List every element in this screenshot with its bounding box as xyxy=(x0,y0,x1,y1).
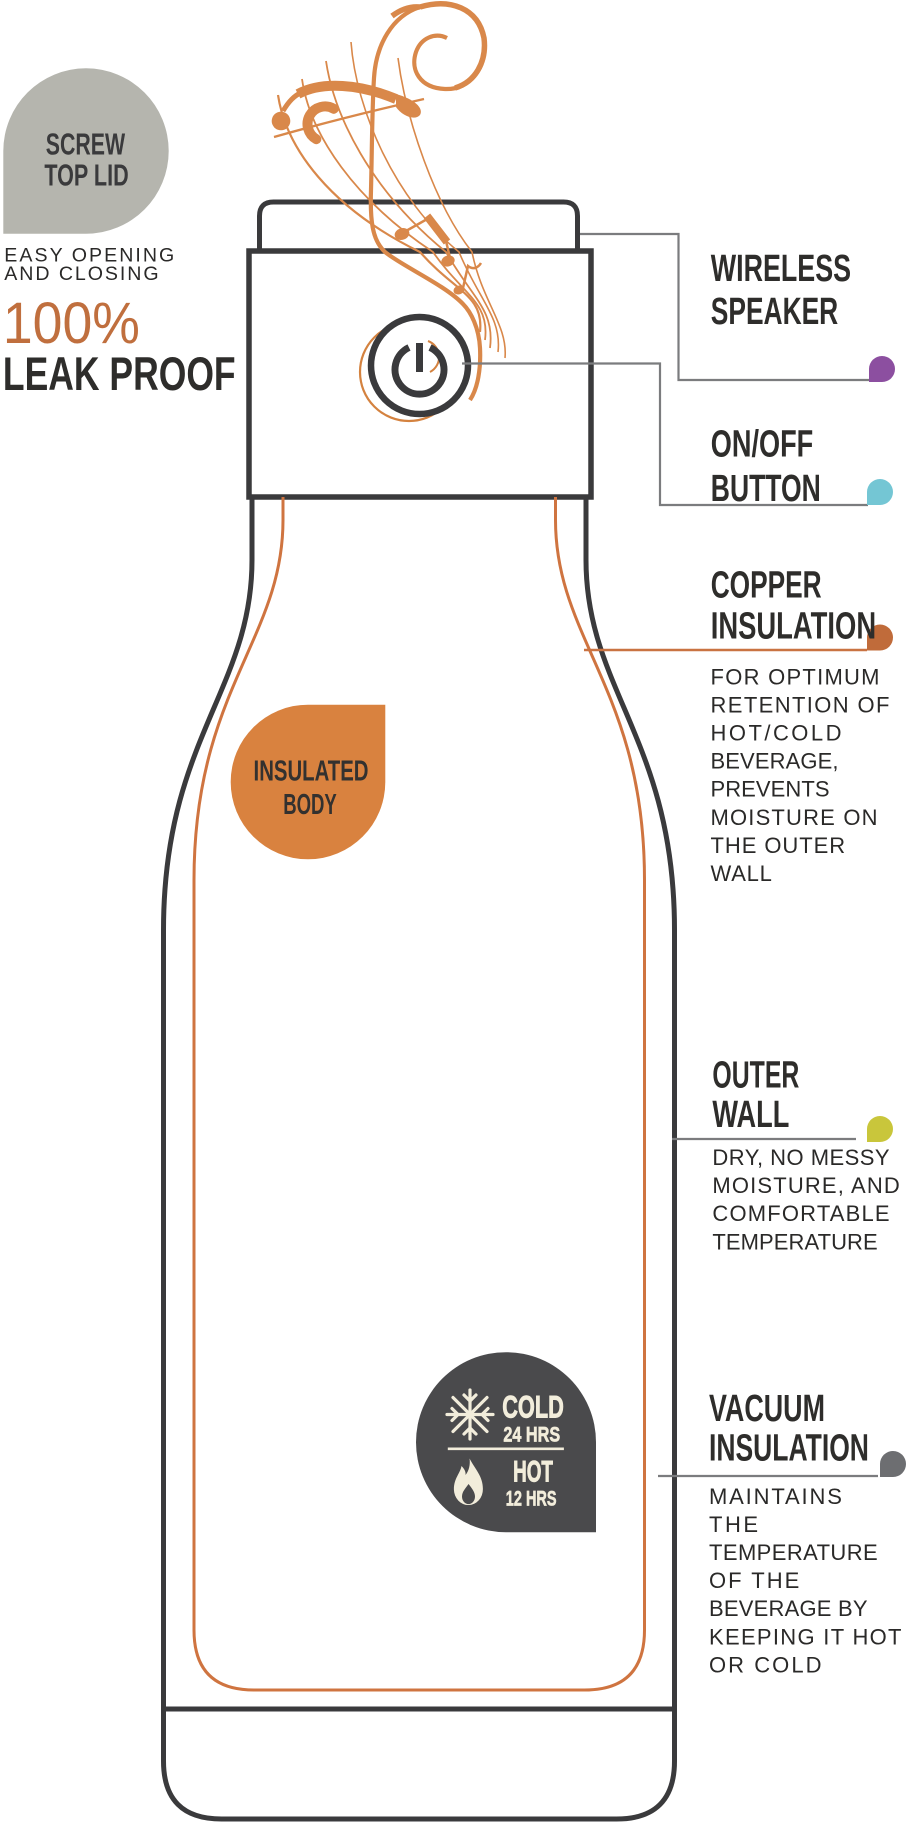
svg-text:MOISTURE ON: MOISTURE ON xyxy=(711,805,878,830)
svg-text:SPEAKER: SPEAKER xyxy=(711,289,838,332)
svg-text:PREVENTS: PREVENTS xyxy=(711,777,830,802)
svg-text:OR COLD: OR COLD xyxy=(709,1652,822,1677)
svg-text:INSULATED: INSULATED xyxy=(254,756,369,787)
svg-text:INSULATION: INSULATION xyxy=(709,1426,869,1469)
svg-text:ON/OFF: ON/OFF xyxy=(711,422,813,465)
svg-text:BEVERAGE BY: BEVERAGE BY xyxy=(709,1596,868,1621)
svg-text:MOISTURE, AND: MOISTURE, AND xyxy=(712,1173,899,1198)
svg-text:WALL: WALL xyxy=(712,1092,789,1135)
svg-text:OF THE: OF THE xyxy=(709,1568,799,1593)
svg-text:HOT/COLD: HOT/COLD xyxy=(711,721,842,746)
svg-text:MAINTAINS: MAINTAINS xyxy=(709,1484,842,1509)
svg-text:WIRELESS: WIRELESS xyxy=(711,247,851,290)
svg-text:BEVERAGE,: BEVERAGE, xyxy=(711,749,839,774)
svg-text:KEEPING IT HOT: KEEPING IT HOT xyxy=(709,1624,902,1649)
svg-text:OUTER: OUTER xyxy=(712,1053,799,1096)
svg-text:SCREW: SCREW xyxy=(46,126,125,161)
svg-text:THE OUTER: THE OUTER xyxy=(711,833,846,858)
svg-text:TEMPERATURE: TEMPERATURE xyxy=(709,1540,878,1565)
svg-text:BODY: BODY xyxy=(283,789,337,821)
svg-text:RETENTION OF: RETENTION OF xyxy=(711,692,890,717)
svg-text:THE: THE xyxy=(709,1512,758,1537)
svg-text:TOP LID: TOP LID xyxy=(44,158,128,193)
svg-text:COPPER: COPPER xyxy=(711,562,822,605)
svg-text:INSULATION: INSULATION xyxy=(711,605,876,647)
svg-text:COMFORTABLE: COMFORTABLE xyxy=(712,1201,889,1226)
svg-text:COLD: COLD xyxy=(502,1388,564,1424)
svg-text:12 HRS: 12 HRS xyxy=(506,1486,557,1511)
svg-text:DRY, NO MESSY: DRY, NO MESSY xyxy=(712,1145,890,1170)
svg-text:100%: 100% xyxy=(3,290,140,355)
svg-text:WALL: WALL xyxy=(711,861,772,886)
svg-text:TEMPERATURE: TEMPERATURE xyxy=(712,1229,877,1254)
svg-text:24 HRS: 24 HRS xyxy=(503,1423,560,1447)
svg-text:HOT: HOT xyxy=(513,1455,553,1488)
svg-text:AND CLOSING: AND CLOSING xyxy=(4,263,158,285)
svg-text:LEAK PROOF: LEAK PROOF xyxy=(3,347,236,400)
svg-text:VACUUM: VACUUM xyxy=(709,1387,825,1430)
svg-text:BUTTON: BUTTON xyxy=(711,466,821,509)
svg-text:FOR OPTIMUM: FOR OPTIMUM xyxy=(711,664,880,689)
